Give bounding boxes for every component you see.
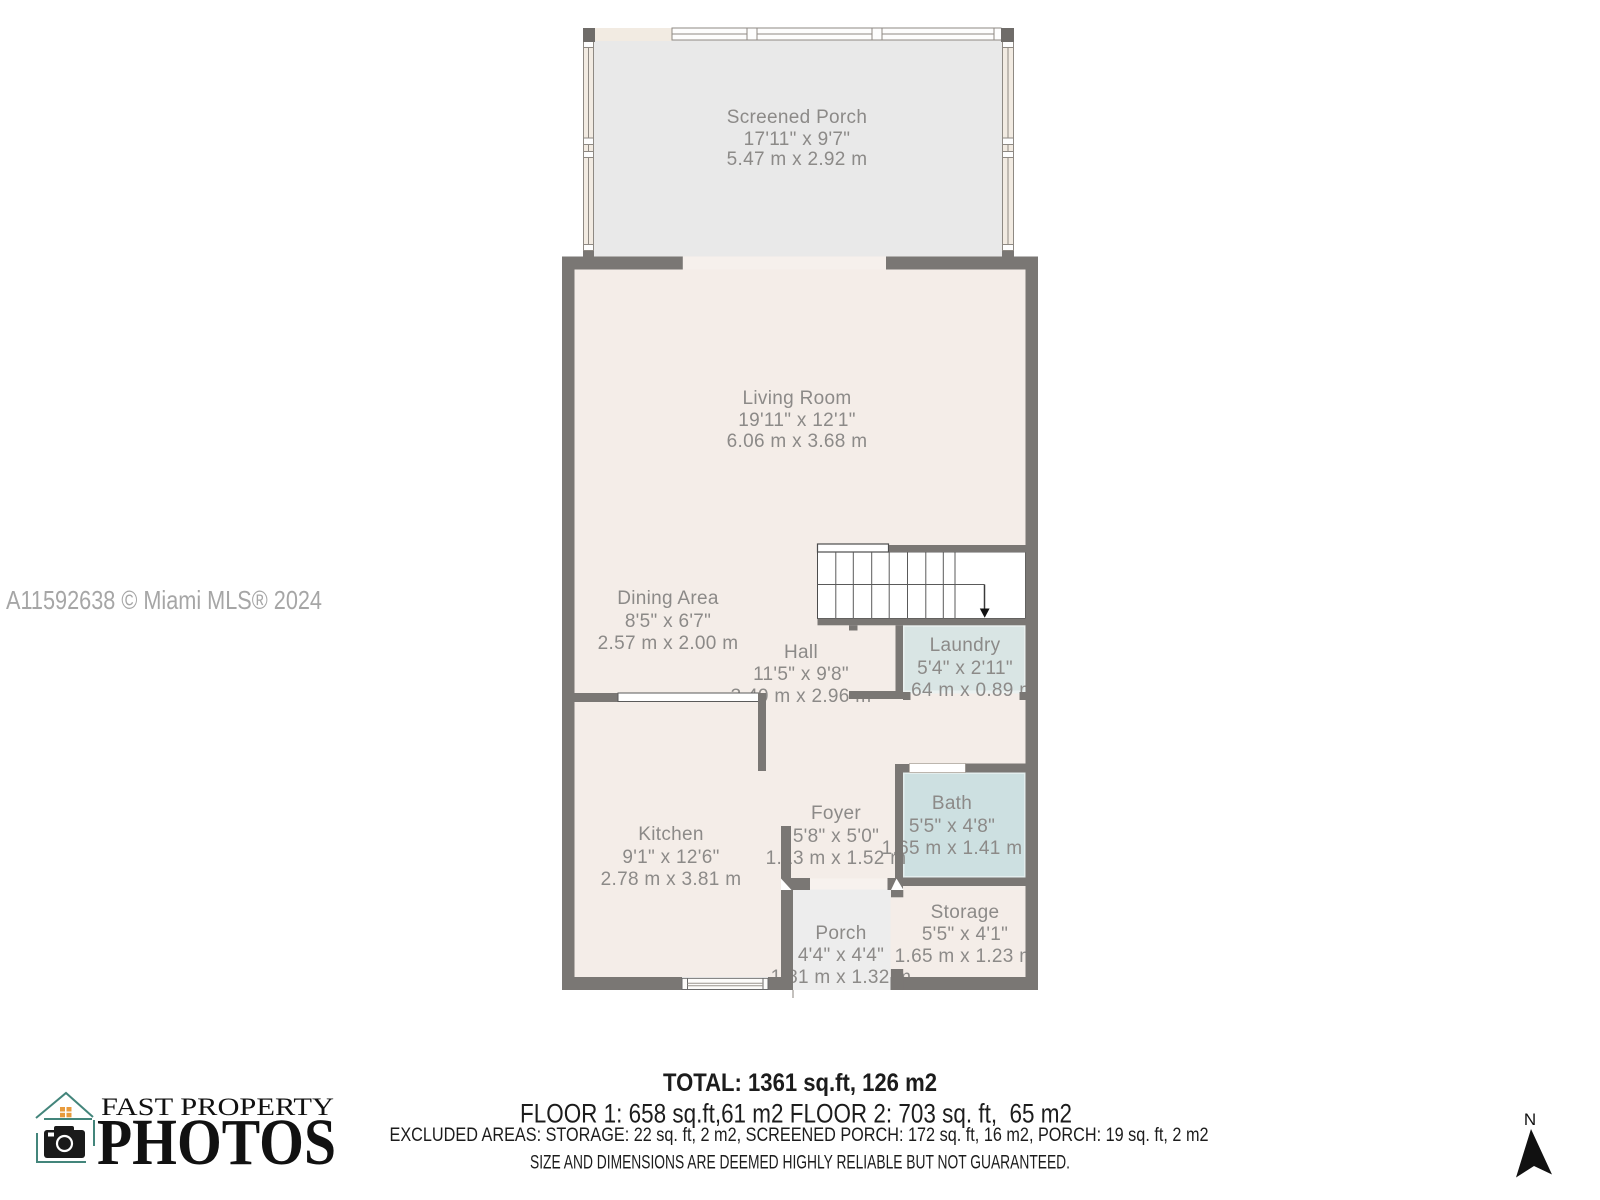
svg-text:FLOOR 1: 658 sq.ft,61 m2 FLOOR: FLOOR 1: 658 sq.ft,61 m2 FLOOR 2: 703 sq… [520, 1099, 1072, 1129]
svg-text:1.65 m x 1.23 m: 1.65 m x 1.23 m [895, 946, 1036, 967]
svg-text:SIZE AND DIMENSIONS ARE DEEMED: SIZE AND DIMENSIONS ARE DEEMED HIGHLY RE… [530, 1153, 1070, 1174]
svg-text:19'11" x 12'1": 19'11" x 12'1" [738, 410, 856, 431]
svg-text:Living Room: Living Room [743, 388, 852, 409]
svg-text:A11592638 © Miami MLS® 2024: A11592638 © Miami MLS® 2024 [6, 585, 322, 615]
svg-text:5.47 m x 2.92 m: 5.47 m x 2.92 m [727, 149, 868, 170]
svg-text:5'5" x 4'8": 5'5" x 4'8" [909, 816, 995, 837]
svg-text:Hall: Hall [784, 642, 818, 663]
svg-text:PHOTOS: PHOTOS [97, 1106, 336, 1179]
svg-text:8'5" x 6'7": 8'5" x 6'7" [625, 611, 711, 632]
svg-text:6.06 m x 3.68 m: 6.06 m x 3.68 m [727, 431, 868, 452]
svg-text:5'5" x 4'1": 5'5" x 4'1" [922, 924, 1008, 945]
svg-text:Foyer: Foyer [811, 803, 861, 824]
svg-text:17'11" x 9'7": 17'11" x 9'7" [744, 129, 851, 150]
svg-text:Porch: Porch [815, 923, 866, 944]
svg-text:N: N [1524, 1110, 1536, 1129]
svg-text:11'5" x 9'8": 11'5" x 9'8" [753, 664, 849, 685]
svg-text:1.64 m x 0.89 m: 1.64 m x 0.89 m [895, 680, 1036, 701]
svg-text:Screened Porch: Screened Porch [727, 107, 867, 128]
svg-text:5'4" x 2'11": 5'4" x 2'11" [917, 658, 1013, 679]
svg-text:Storage: Storage [931, 902, 1000, 923]
svg-text:EXCLUDED AREAS: STORAGE: 22 sq: EXCLUDED AREAS: STORAGE: 22 sq. ft, 2 m2… [390, 1125, 1209, 1146]
svg-text:5'8" x 5'0": 5'8" x 5'0" [793, 826, 879, 847]
svg-text:Bath: Bath [932, 793, 972, 814]
svg-text:2.57 m x 2.00 m: 2.57 m x 2.00 m [598, 633, 739, 654]
svg-text:4'4" x 4'4": 4'4" x 4'4" [798, 945, 884, 966]
svg-text:Dining Area: Dining Area [617, 588, 719, 609]
svg-text:2.78 m x 3.81 m: 2.78 m x 3.81 m [601, 869, 742, 890]
svg-text:Kitchen: Kitchen [638, 824, 703, 845]
svg-text:TOTAL: 1361 sq.ft, 126 m2: TOTAL: 1361 sq.ft, 126 m2 [663, 1069, 937, 1097]
svg-text:Laundry: Laundry [930, 635, 1001, 656]
svg-text:9'1" x 12'6": 9'1" x 12'6" [622, 847, 719, 868]
